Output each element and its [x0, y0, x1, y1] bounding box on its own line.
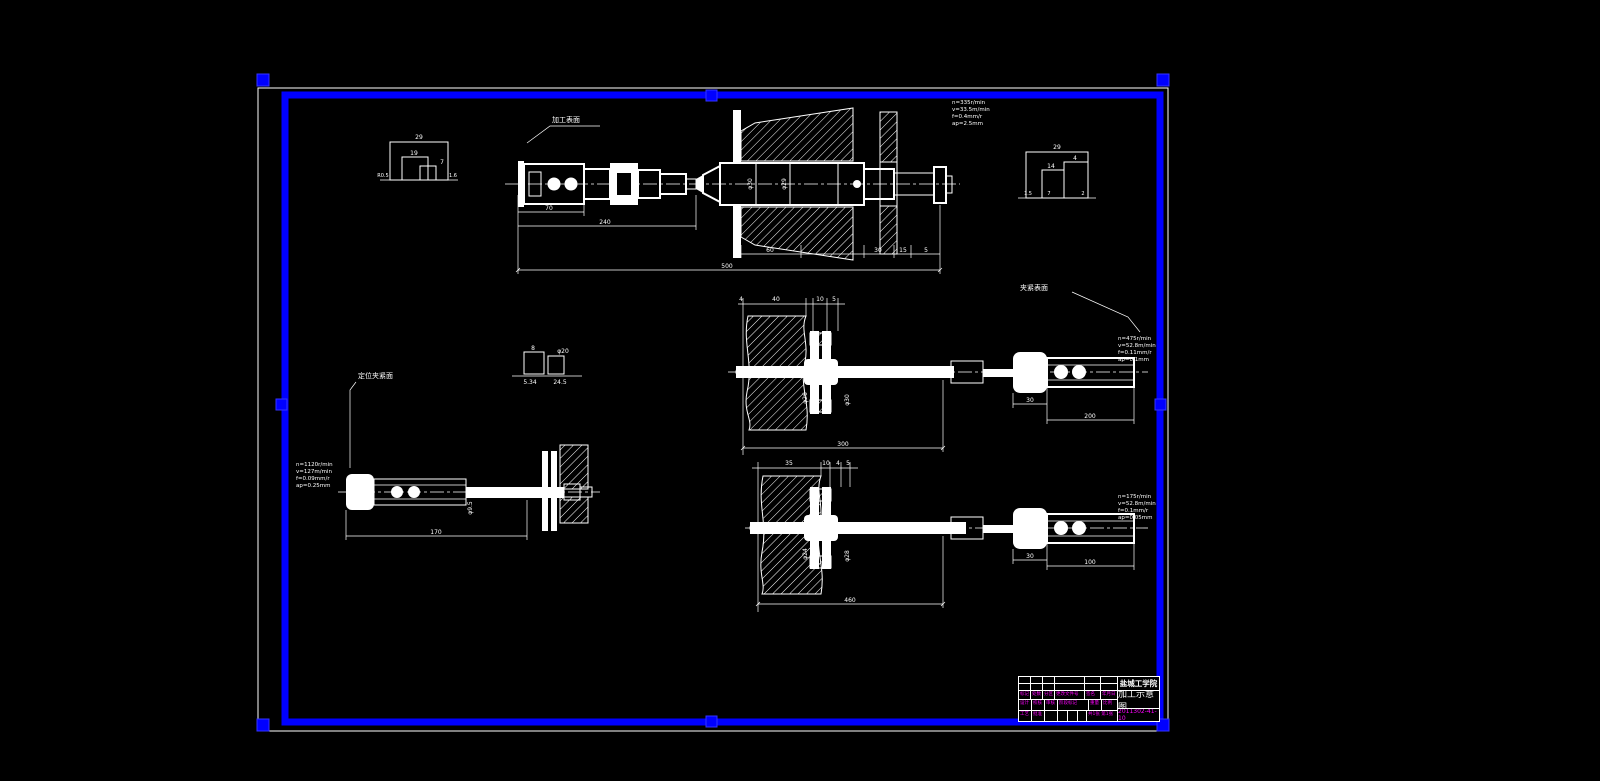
dim-label: 7	[1047, 191, 1050, 197]
dim-label: 170	[430, 529, 442, 536]
dia-label: φ9.5	[467, 501, 474, 515]
mark-label: 分区	[1043, 691, 1055, 699]
surface-label: 夹紧表面	[1020, 283, 1048, 292]
dim-label: 30	[1026, 553, 1034, 560]
stage-cell	[1058, 711, 1068, 721]
grip-bottom-left[interactable]	[257, 719, 269, 731]
title-block-grid: 标记 处数 分区 更改文件号 签名 年月日 设计 校核 审核 阶段标记 重量 比…	[1019, 677, 1118, 721]
title-block: 标记 处数 分区 更改文件号 签名 年月日 设计 校核 审核 阶段标记 重量 比…	[1018, 676, 1160, 722]
empty-cell	[1101, 684, 1117, 690]
param-line: f=0.1mm/r	[1118, 508, 1149, 514]
dia-label: φ26	[802, 392, 809, 404]
param-line: ap=0.05mm	[1118, 515, 1152, 521]
dim-label: 4	[1073, 155, 1077, 162]
empty-cell	[1055, 684, 1085, 690]
dim-label: 5	[846, 460, 850, 467]
dim-label: 24.5	[553, 379, 567, 386]
param-line: n=175r/min	[1118, 494, 1152, 500]
surface-label: 定位夹紧面	[358, 371, 393, 380]
param-line: ap=0.1mm	[1118, 357, 1149, 363]
dim-label: 200	[1084, 413, 1096, 420]
dia-label: φ30	[844, 394, 851, 406]
dim-label: 8	[531, 345, 535, 352]
stage-cell	[1068, 711, 1078, 721]
empty-cell	[1031, 677, 1043, 683]
param-line: v=52.8m/min	[1118, 343, 1156, 349]
param-line: v=52.8m/min	[1118, 501, 1156, 507]
dim-label: 100	[1084, 559, 1096, 566]
mark-label: 更改文件号	[1055, 691, 1085, 699]
dim-label: 1.6	[449, 173, 457, 179]
weight-label: 重量	[1089, 700, 1102, 710]
role-label: 设计	[1019, 700, 1032, 710]
sheet-label: 共1张 第1张	[1087, 711, 1117, 721]
cad-canvas[interactable]: 加工表面 φ30 φ29	[0, 0, 1600, 781]
dim-label: 300	[837, 441, 849, 448]
dim-label: 14	[1047, 163, 1055, 170]
empty-cell	[1019, 677, 1031, 683]
selection-frame[interactable]	[285, 95, 1160, 722]
dim-label: 19	[410, 150, 418, 157]
grip-mid-left[interactable]	[276, 399, 287, 410]
dim-label: 15	[899, 247, 907, 254]
dia-label: φ29	[781, 178, 788, 190]
grip-top-right[interactable]	[1157, 74, 1169, 86]
param-line: n=475r/min	[1118, 336, 1152, 342]
view-grinding-lower: φ24 φ28 35 10 4 5 460 30 100 n=175	[745, 460, 1156, 612]
empty-cell	[1085, 684, 1101, 690]
grip-top-mid[interactable]	[706, 90, 717, 101]
surface-label: 加工表面	[552, 115, 580, 124]
mark-label: 年月日	[1101, 691, 1117, 699]
dim-label: 4	[836, 460, 840, 467]
param-line: n=335r/min	[952, 100, 986, 106]
dim-label: 10	[822, 460, 830, 467]
dim-label: R0.5	[377, 173, 388, 179]
dim-label: φ20	[557, 348, 569, 355]
dim-label: 5	[832, 296, 836, 303]
dim-label: 40	[772, 296, 780, 303]
dim-label: 30	[874, 247, 882, 254]
grip-top-left[interactable]	[257, 74, 269, 86]
empty-cell	[1045, 711, 1058, 721]
detail-inset-2: 29 14 4 1.5 7 2	[1018, 144, 1096, 198]
dia-label: φ30	[747, 178, 754, 190]
dim-label: 29	[1053, 144, 1061, 151]
dim-label: 2	[1081, 191, 1084, 197]
dim-label: 35	[785, 460, 793, 467]
role-label: 校核	[1032, 700, 1045, 710]
drawing-number: 2011302-41-10	[1118, 709, 1159, 721]
dim-label: 240	[599, 219, 611, 226]
empty-cell	[1101, 677, 1117, 683]
detail-inset-3: 8 φ20 5.34 24.5	[512, 345, 582, 386]
scale-label: 比例	[1102, 700, 1117, 710]
detail-inset-1: 29 19 7 R0.5 1.6	[377, 134, 458, 180]
param-line: n=1120r/min	[296, 462, 333, 468]
dim-label: 7	[440, 159, 444, 166]
grip-mid-right[interactable]	[1155, 399, 1166, 410]
dim-label: 10	[816, 296, 824, 303]
param-line: f=0.09mm/r	[296, 476, 330, 482]
stage-label: 阶段标记	[1058, 700, 1089, 710]
school-name: 盐城工学院	[1118, 677, 1159, 691]
title-block-right: 盐城工学院 加工示意图 2011302-41-10	[1118, 677, 1159, 721]
view-turning: 加工表面 φ30 φ29	[505, 100, 990, 274]
dia-label: φ24	[802, 548, 809, 560]
view-grinding-upper: 夹紧表面 φ26 φ30 4 40 10 5	[728, 283, 1156, 455]
empty-cell	[1031, 684, 1043, 690]
empty-cell	[1043, 677, 1055, 683]
stage-cell	[1078, 711, 1087, 721]
role-label: 审核	[1045, 700, 1058, 710]
mark-label: 签名	[1085, 691, 1101, 699]
dim-label: 30	[1026, 397, 1034, 404]
empty-cell	[1055, 677, 1085, 683]
param-line: ap=2.5mm	[952, 121, 983, 127]
view-grinding-left: 定位夹紧面 φ9.5 170 n=1120r/min v=127m/min f=…	[296, 371, 600, 540]
empty-cell	[1043, 684, 1055, 690]
param-line: f=0.11mm/r	[1118, 350, 1152, 356]
dim-label: 5.34	[523, 379, 537, 386]
dim-label: 29	[415, 134, 423, 141]
sheet-border	[258, 88, 1168, 731]
mark-label: 标记	[1019, 691, 1031, 699]
empty-cell	[1085, 677, 1101, 683]
dim-label: 5	[924, 247, 928, 254]
role-label: 工艺	[1019, 711, 1032, 721]
empty-cell	[1019, 684, 1031, 690]
mark-label: 处数	[1031, 691, 1043, 699]
param-line: v=33.5m/min	[952, 107, 990, 113]
param-line: f=0.4mm/r	[952, 114, 983, 120]
dim-label: 500	[721, 263, 733, 270]
dim-label: 60	[766, 247, 774, 254]
dim-label: 70	[545, 205, 553, 212]
param-line: v=127m/min	[296, 469, 332, 475]
dim-label: 4	[739, 296, 743, 303]
drawing-title: 加工示意图	[1118, 691, 1159, 709]
drawing-layer: 加工表面 φ30 φ29	[0, 0, 1600, 781]
grip-bottom-mid[interactable]	[706, 716, 717, 727]
dia-label: φ28	[844, 550, 851, 562]
role-label: 批准	[1032, 711, 1045, 721]
param-line: ap=0.25mm	[296, 483, 330, 489]
dim-label: 460	[844, 597, 856, 604]
dim-label: 1.5	[1024, 191, 1032, 197]
